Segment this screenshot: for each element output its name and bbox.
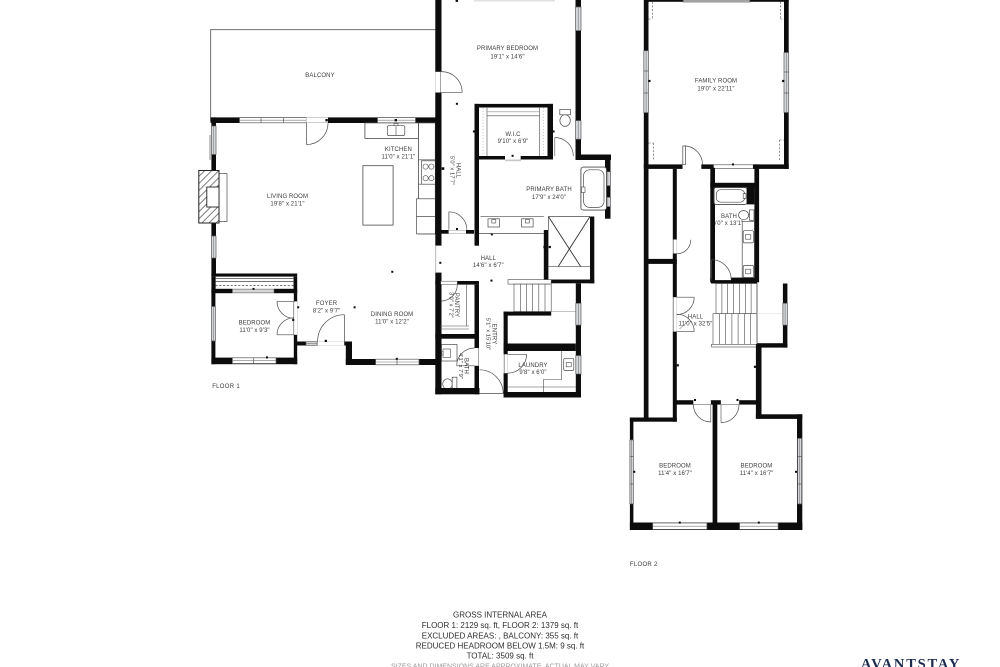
svg-text:11'4" x 16'7": 11'4" x 16'7" — [658, 471, 692, 477]
svg-text:19'0" x 22'11": 19'0" x 22'11" — [697, 86, 734, 92]
svg-text:9'8" x 6'0": 9'8" x 6'0" — [519, 370, 546, 376]
svg-text:PRIMARY BEDROOM: PRIMARY BEDROOM — [477, 46, 538, 52]
svg-text:LIVING ROOM: LIVING ROOM — [267, 194, 308, 200]
svg-text:11'0" x 21'1": 11'0" x 21'1" — [382, 154, 416, 160]
svg-text:DINING ROOM: DINING ROOM — [371, 312, 413, 318]
svg-text:11'0" x 32'5": 11'0" x 32'5" — [679, 321, 713, 327]
svg-text:5'0" x 17'7": 5'0" x 17'7" — [449, 156, 455, 185]
svg-text:5'1" x 15'10": 5'1" x 15'10" — [485, 318, 491, 351]
svg-text:BEDROOM: BEDROOM — [239, 321, 271, 327]
svg-text:FLOOR 1: FLOOR 1 — [212, 384, 240, 390]
svg-text:14'6" x 6'7": 14'6" x 6'7" — [473, 263, 504, 269]
svg-text:EXCLUDED AREAS: , BALCONY: 355: EXCLUDED AREAS: , BALCONY: 355 sq. ft — [422, 631, 579, 640]
svg-text:TOTAL: 3509 sq. ft: TOTAL: 3509 sq. ft — [467, 652, 535, 661]
svg-text:FOYER: FOYER — [316, 301, 338, 307]
svg-text:HALL: HALL — [481, 256, 497, 262]
svg-text:6'0" x 13'1": 6'0" x 13'1" — [713, 221, 744, 227]
svg-text:HALL: HALL — [688, 315, 704, 321]
svg-text:11'4" x 16'7": 11'4" x 16'7" — [740, 471, 774, 477]
svg-text:BATH: BATH — [721, 214, 737, 220]
svg-text:FLOOR 2: FLOOR 2 — [630, 562, 658, 568]
svg-text:W.I.C: W.I.C — [505, 132, 521, 138]
svg-text:17'9" x 24'0": 17'9" x 24'0" — [532, 195, 566, 201]
svg-text:SIZES AND DIMENSIONS ARE APPRO: SIZES AND DIMENSIONS ARE APPROXIMATE, AC… — [391, 664, 609, 667]
svg-text:PRIMARY BATH: PRIMARY BATH — [526, 187, 572, 193]
svg-text:11'0" x 12'2": 11'0" x 12'2" — [375, 320, 409, 326]
svg-text:FAMILY ROOM: FAMILY ROOM — [695, 79, 737, 85]
svg-text:8'2" x 9'7": 8'2" x 9'7" — [313, 308, 340, 314]
svg-text:BEDROOM: BEDROOM — [741, 463, 773, 469]
svg-text:19'8" x 21'1": 19'8" x 21'1" — [270, 202, 304, 208]
svg-text:AVANTSTAY: AVANTSTAY — [861, 657, 961, 667]
svg-text:BALCONY: BALCONY — [305, 73, 334, 79]
svg-text:9'10" x 6'9": 9'10" x 6'9" — [498, 139, 529, 145]
svg-text:19'1" x 14'6": 19'1" x 14'6" — [490, 55, 524, 61]
svg-text:KITCHEN: KITCHEN — [385, 147, 412, 153]
svg-text:REDUCED HEADROOM BELOW 1.5M: 9: REDUCED HEADROOM BELOW 1.5M: 9 sq. ft — [416, 642, 585, 651]
svg-text:GROSS INTERNAL AREA: GROSS INTERNAL AREA — [453, 611, 548, 620]
svg-text:BEDROOM: BEDROOM — [659, 463, 691, 469]
svg-text:11'0" x 9'3": 11'0" x 9'3" — [239, 328, 269, 334]
svg-text:FLOOR 1: 2129 sq. ft, FLOOR 2:: FLOOR 1: 2129 sq. ft, FLOOR 2: 1379 sq. … — [422, 621, 579, 630]
